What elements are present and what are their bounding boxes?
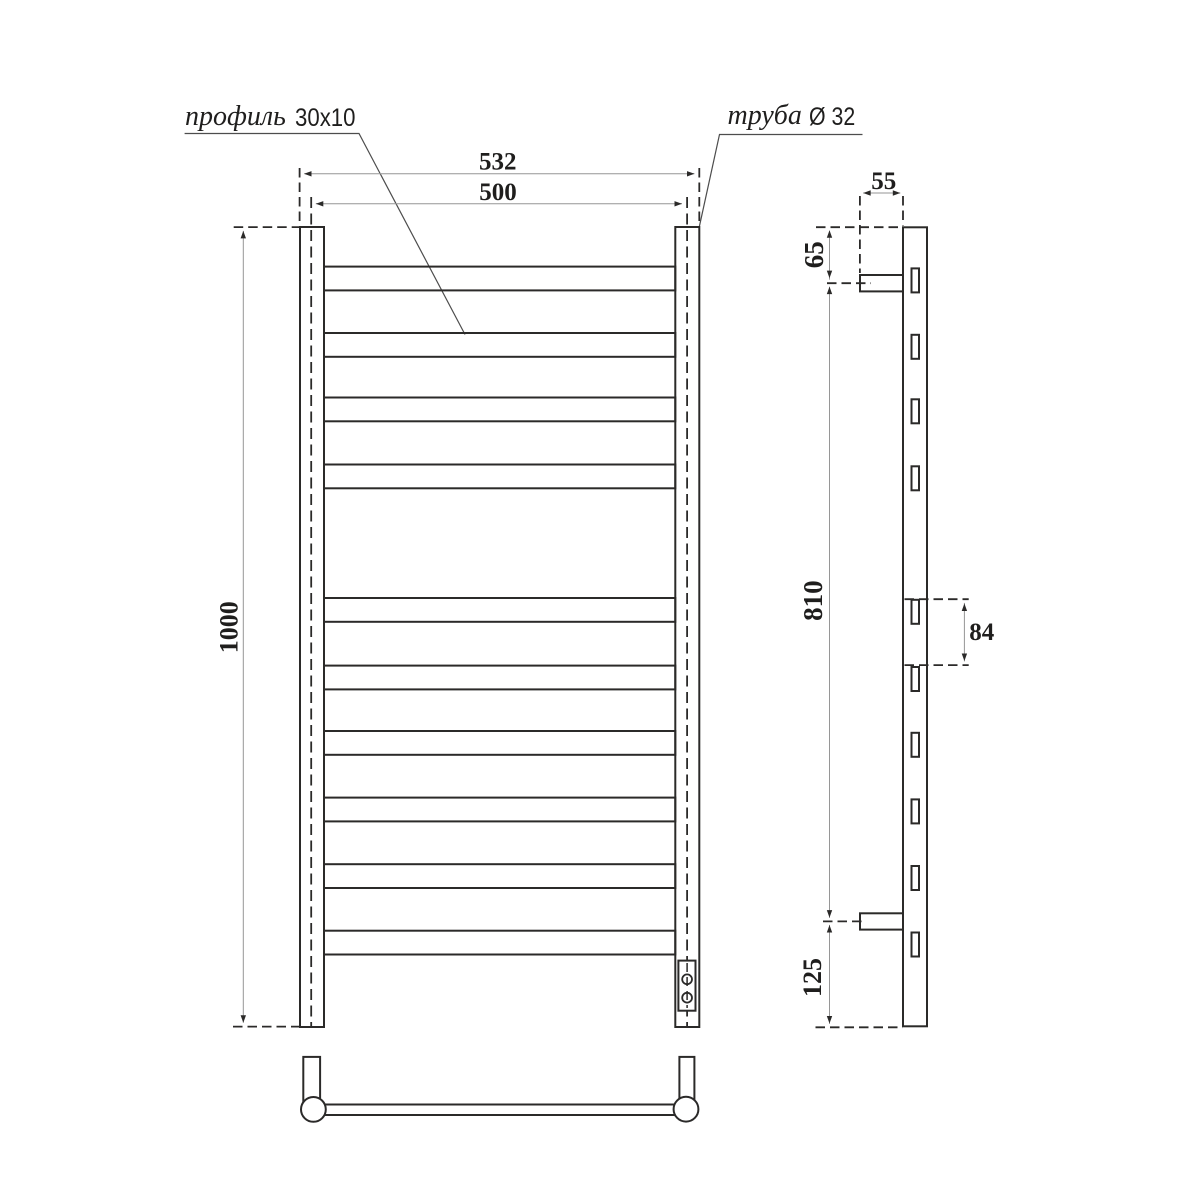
svg-text:125: 125 xyxy=(798,958,827,997)
svg-text:84: 84 xyxy=(969,619,995,646)
svg-text:55: 55 xyxy=(871,168,896,195)
svg-text:500: 500 xyxy=(479,179,517,206)
svg-text:профиль: профиль xyxy=(185,101,286,132)
svg-text:532: 532 xyxy=(479,149,517,176)
svg-text:65: 65 xyxy=(799,241,829,268)
svg-text:30x10: 30x10 xyxy=(295,104,356,132)
svg-text:1000: 1000 xyxy=(215,601,244,653)
svg-text:труба: труба xyxy=(728,100,802,131)
svg-text:810: 810 xyxy=(798,580,828,621)
svg-text:Ø 32: Ø 32 xyxy=(809,103,855,131)
